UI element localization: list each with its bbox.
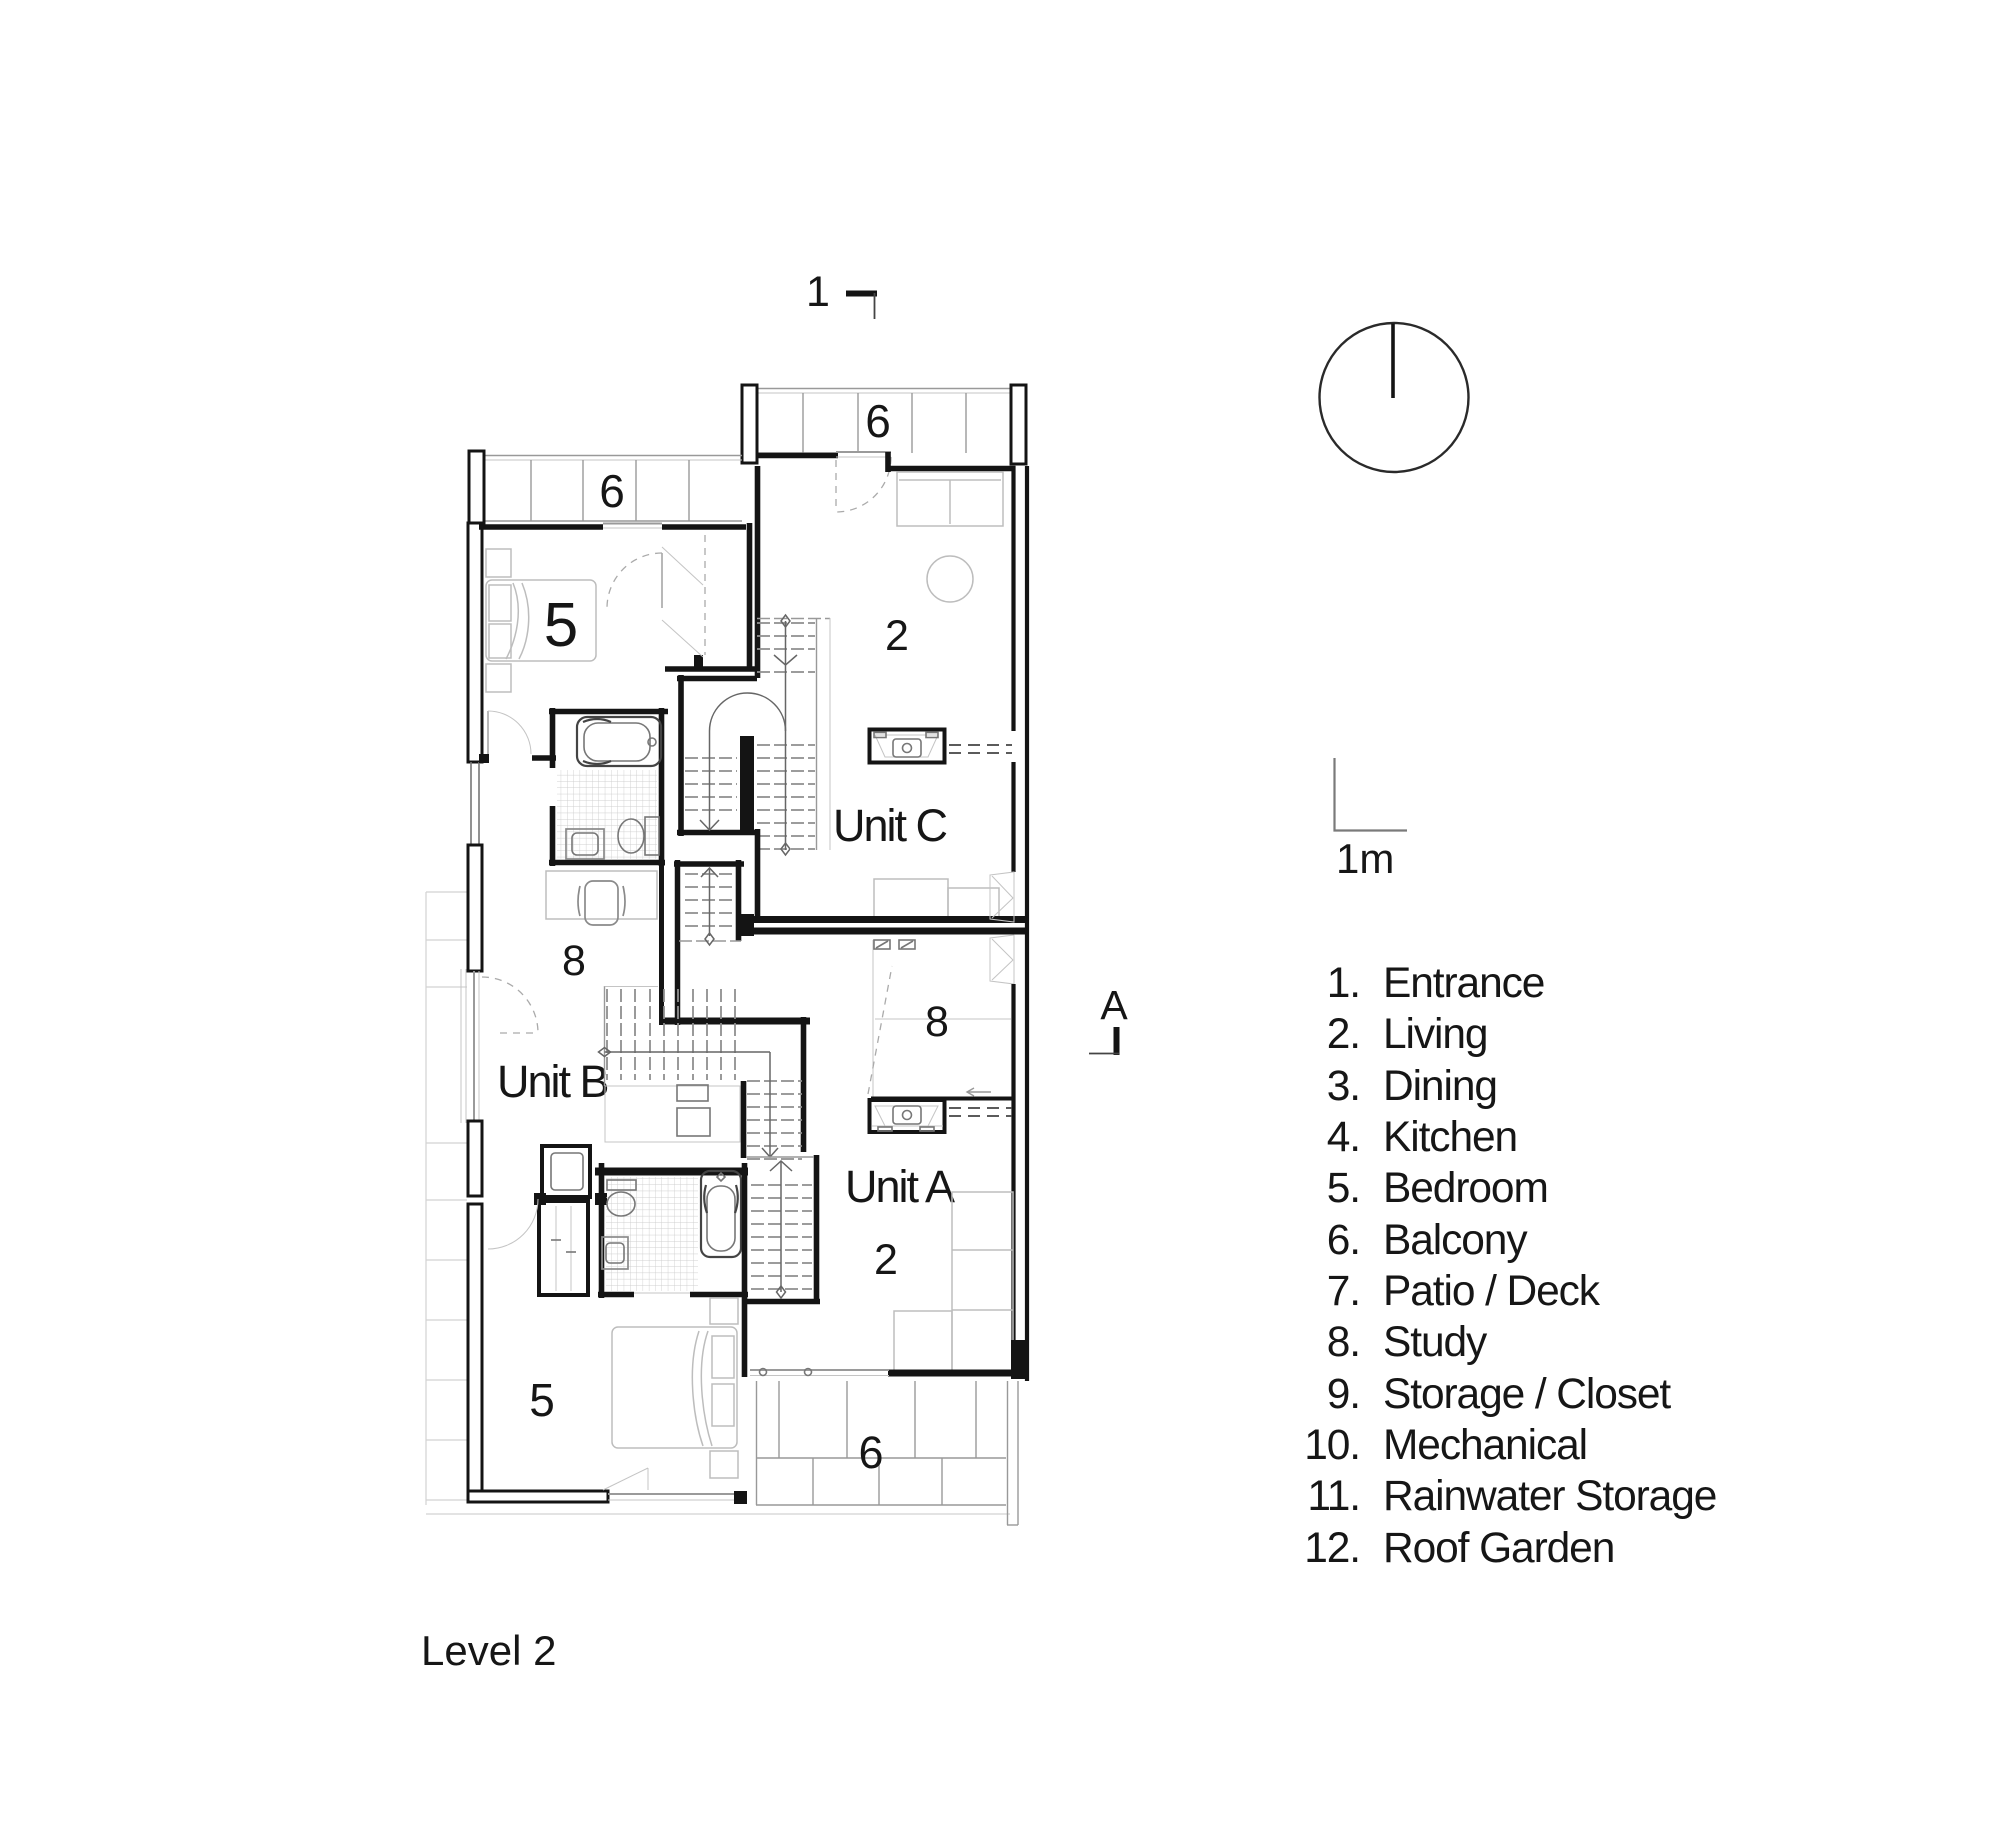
svg-text:1.: 1. [1327, 960, 1360, 1007]
svg-text:6: 6 [858, 1427, 883, 1478]
svg-text:8.: 8. [1327, 1319, 1360, 1366]
svg-text:1m: 1m [1336, 835, 1394, 882]
svg-text:A: A [1100, 982, 1128, 1028]
svg-text:Level 2: Level 2 [421, 1627, 556, 1674]
svg-text:5: 5 [529, 1374, 555, 1426]
svg-text:1: 1 [806, 268, 830, 316]
svg-text:6: 6 [865, 395, 891, 447]
svg-text:Unit A: Unit A [845, 1161, 955, 1212]
svg-text:Roof Garden: Roof Garden [1383, 1525, 1614, 1572]
svg-text:Kitchen: Kitchen [1383, 1114, 1517, 1161]
svg-text:Dining: Dining [1383, 1063, 1497, 1110]
svg-text:10.: 10. [1304, 1422, 1360, 1469]
svg-text:4.: 4. [1327, 1114, 1360, 1161]
svg-text:5.: 5. [1327, 1165, 1360, 1212]
svg-text:Bedroom: Bedroom [1383, 1165, 1548, 1212]
svg-text:Study: Study [1383, 1319, 1488, 1366]
svg-text:8: 8 [562, 937, 586, 985]
svg-text:5: 5 [544, 591, 578, 660]
svg-text:Unit B: Unit B [497, 1056, 608, 1107]
svg-text:Living: Living [1383, 1011, 1487, 1058]
svg-text:Unit C: Unit C [833, 800, 947, 851]
svg-text:2: 2 [874, 1236, 898, 1284]
svg-text:2: 2 [885, 612, 909, 660]
svg-text:12.: 12. [1304, 1525, 1360, 1572]
svg-text:7.: 7. [1327, 1268, 1360, 1315]
svg-text:Mechanical: Mechanical [1383, 1422, 1587, 1469]
svg-text:6: 6 [599, 465, 625, 517]
svg-text:9.: 9. [1327, 1371, 1360, 1418]
svg-text:Patio / Deck: Patio / Deck [1383, 1268, 1601, 1315]
svg-text:Balcony: Balcony [1383, 1217, 1528, 1264]
svg-text:11.: 11. [1307, 1473, 1360, 1520]
svg-text:Rainwater Storage: Rainwater Storage [1383, 1473, 1716, 1520]
svg-text:6.: 6. [1327, 1217, 1360, 1264]
svg-text:Storage / Closet: Storage / Closet [1383, 1371, 1671, 1418]
svg-text:Entrance: Entrance [1383, 960, 1544, 1007]
svg-text:3.: 3. [1327, 1063, 1360, 1110]
svg-text:2.: 2. [1327, 1011, 1360, 1058]
svg-text:8: 8 [925, 998, 949, 1046]
